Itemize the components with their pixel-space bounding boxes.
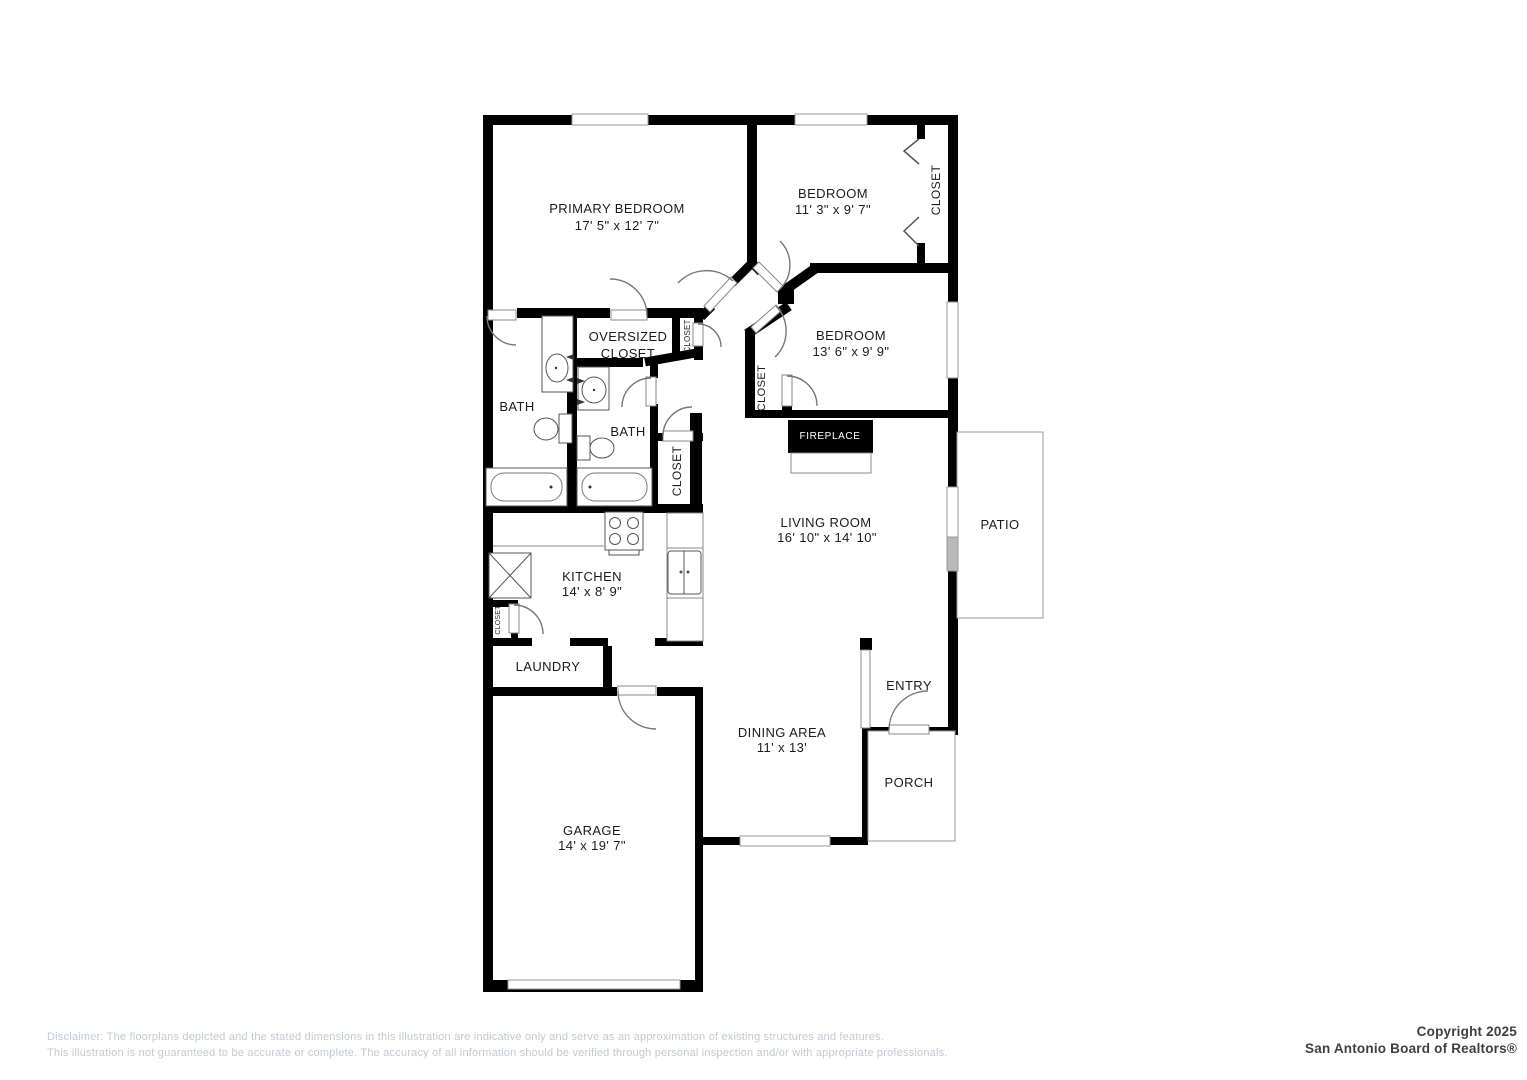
fireplace-hearth bbox=[791, 453, 871, 473]
bath1-toilet bbox=[534, 418, 558, 440]
label-living-room-dims: 16' 10" x 14' 10" bbox=[777, 530, 877, 546]
patio-door-sash1 bbox=[947, 487, 958, 537]
label-linen-closet: CLOSET bbox=[669, 446, 685, 496]
garage-door-opening bbox=[508, 980, 680, 989]
label-dining-area: DINING AREA bbox=[738, 725, 826, 741]
label-bath2: BATH bbox=[610, 424, 645, 440]
entry-railing bbox=[861, 650, 870, 728]
bath1-toilet-tank bbox=[559, 414, 572, 443]
label-dining-area-dims: 11' x 13' bbox=[757, 740, 807, 756]
label-kitchen: KITCHEN bbox=[562, 569, 622, 585]
label-kitchen-dims: 14' x 8' 9" bbox=[562, 584, 622, 600]
label-primary-bedroom: PRIMARY BEDROOM bbox=[549, 201, 685, 217]
label-laundry: LAUNDRY bbox=[516, 659, 581, 675]
window-bedroom2 bbox=[795, 114, 867, 125]
label-oversized-closet: OVERSIZED CLOSET bbox=[580, 328, 676, 362]
label-hall-closet: CLOSET bbox=[680, 319, 696, 352]
label-primary-bedroom-dims: 17' 5" x 12' 7" bbox=[575, 218, 660, 234]
floorplan-drawing bbox=[0, 0, 1527, 1080]
walls-layer bbox=[483, 115, 958, 992]
label-living-room: LIVING ROOM bbox=[780, 515, 871, 531]
patio-door-sash2 bbox=[947, 537, 958, 571]
copyright-line2: San Antonio Board of Realtors® bbox=[1305, 1041, 1517, 1056]
window-bedroom3 bbox=[947, 302, 958, 378]
label-bedroom3-dims: 13' 6" x 9' 9" bbox=[813, 344, 890, 360]
bath2-toilet bbox=[590, 438, 614, 458]
label-patio: PATIO bbox=[980, 517, 1019, 533]
label-porch: PORCH bbox=[885, 775, 934, 791]
label-bath1: BATH bbox=[499, 399, 534, 415]
label-bedroom2-closet: CLOSET bbox=[928, 165, 944, 215]
bath2-toilet-tank bbox=[577, 436, 590, 460]
label-fireplace: FIREPLACE bbox=[800, 429, 861, 445]
disclaimer-line1: Disclaimer: The floorplans depicted and … bbox=[47, 1031, 884, 1043]
label-bedroom2-dims: 11' 3" x 9' 7" bbox=[795, 202, 871, 218]
window-dining bbox=[740, 836, 830, 846]
label-entry: ENTRY bbox=[886, 678, 932, 694]
floorplan-page: PRIMARY BEDROOM 17' 5" x 12' 7" BEDROOM … bbox=[0, 0, 1527, 1080]
stove bbox=[605, 512, 643, 550]
window-primary-bedroom bbox=[572, 114, 648, 125]
windows-layer bbox=[508, 114, 958, 989]
label-bedroom2: BEDROOM bbox=[798, 186, 868, 202]
label-bedroom3: BEDROOM bbox=[816, 328, 886, 344]
copyright-line1: Copyright 2025 bbox=[1417, 1024, 1517, 1039]
label-garage-dims: 14' x 19' 7" bbox=[558, 838, 626, 854]
bifold-closet-doors bbox=[904, 139, 919, 246]
label-pantry-closet: CLOSET bbox=[491, 605, 507, 634]
disclaimer-line2: This illustration is not guaranteed to b… bbox=[47, 1047, 948, 1059]
label-garage: GARAGE bbox=[563, 823, 621, 839]
label-bedroom3-closet: CLOSET bbox=[754, 365, 770, 411]
